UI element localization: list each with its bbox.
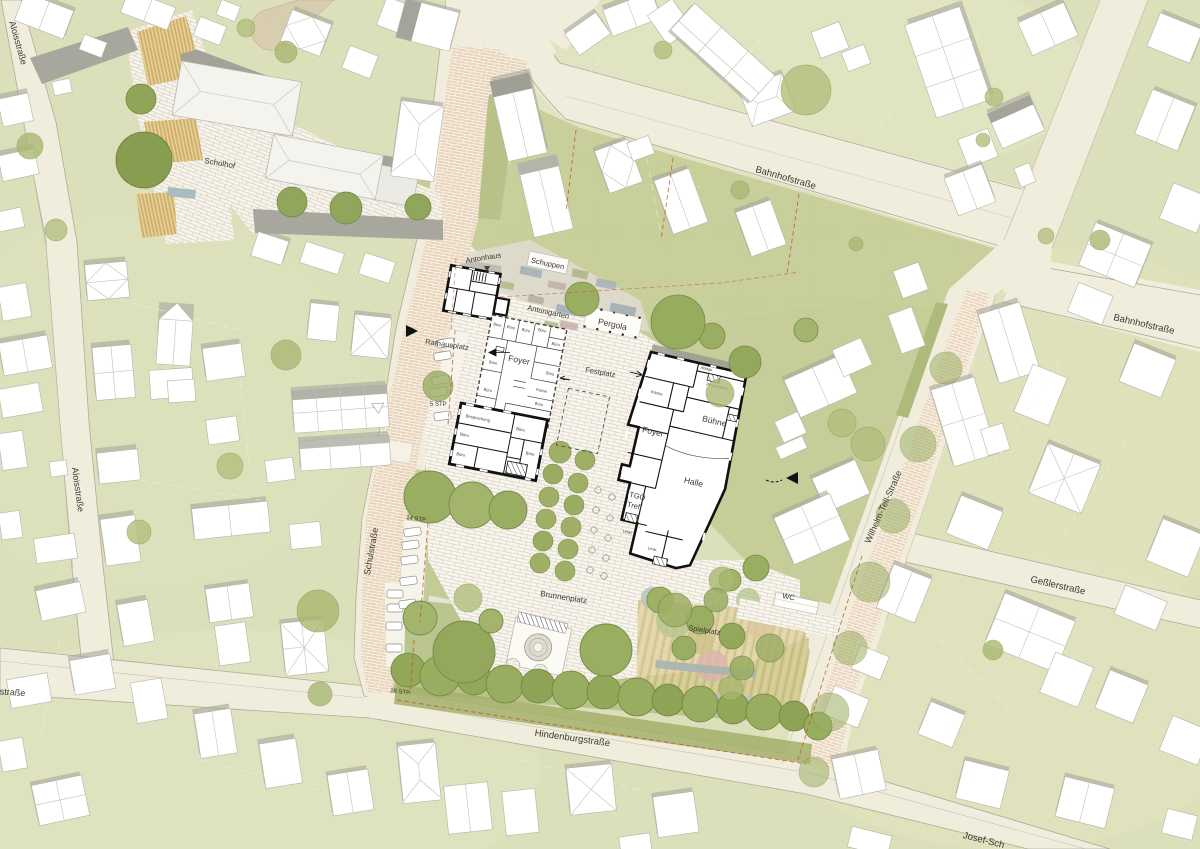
svg-text:straße: straße [0,686,26,698]
svg-text:5 STP: 5 STP [430,402,447,408]
